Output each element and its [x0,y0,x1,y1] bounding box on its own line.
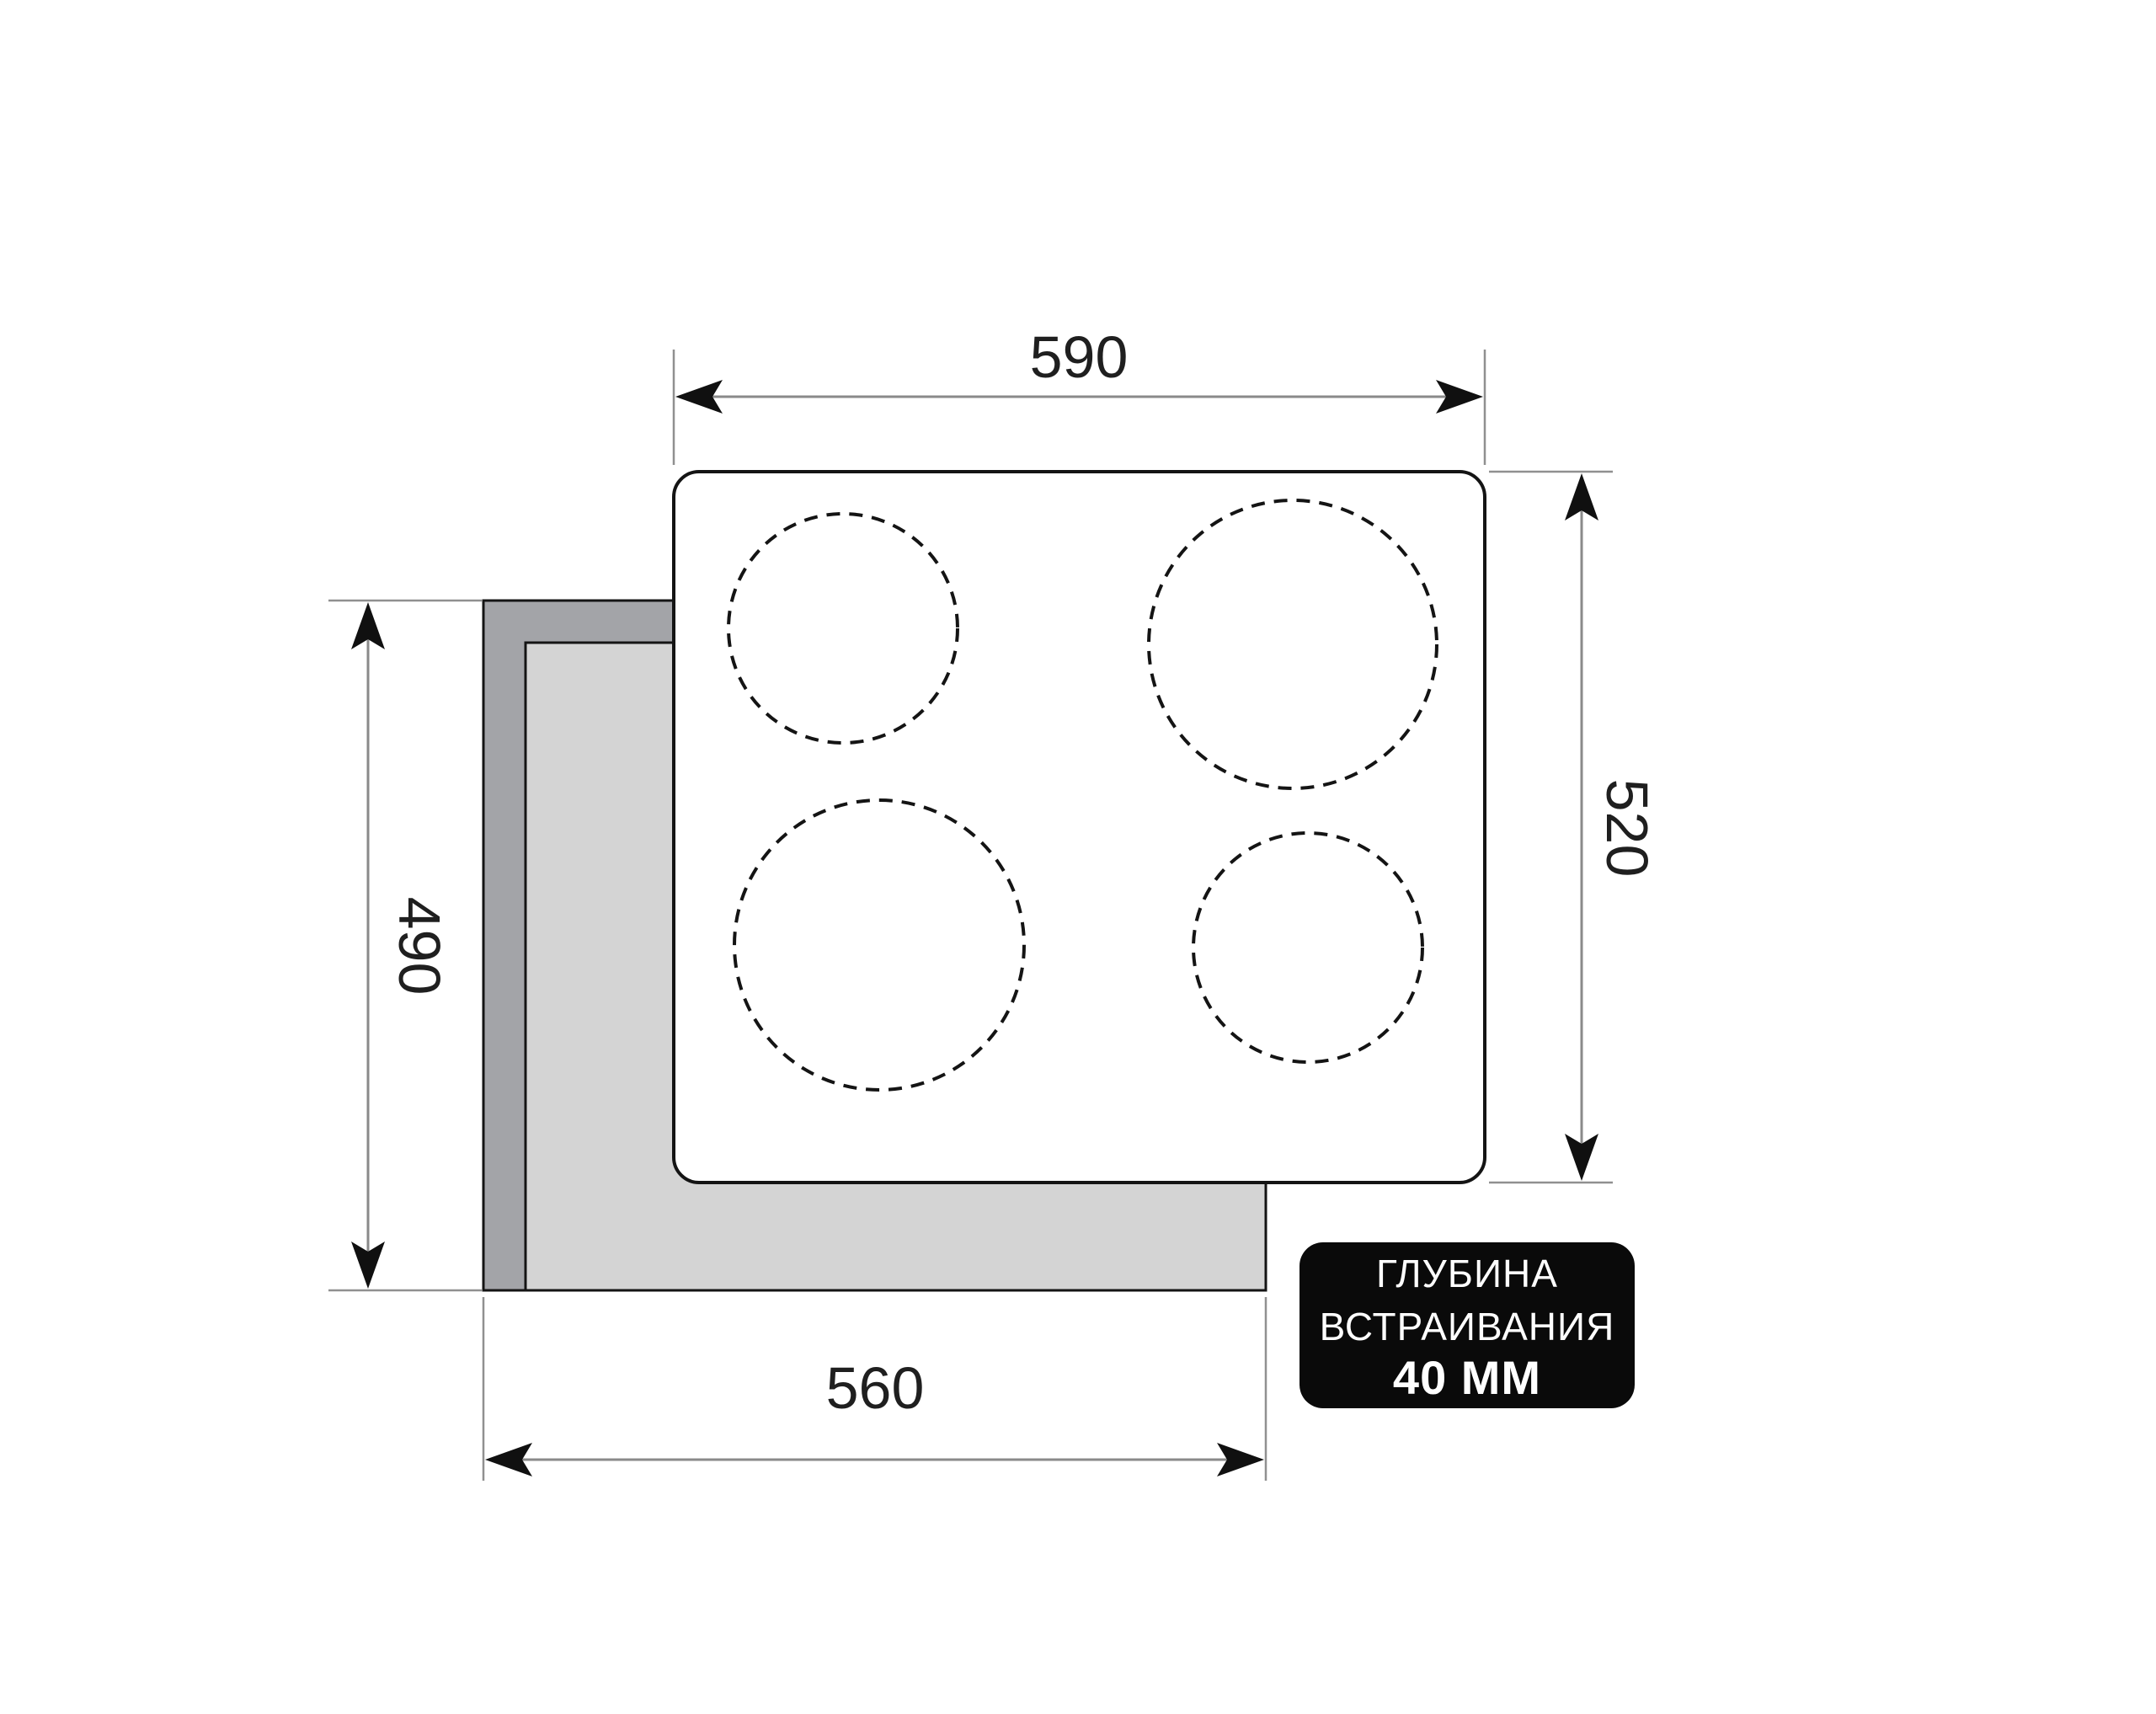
dim-label-cutout-depth: 490 [387,897,452,996]
dimension-diagram-page: 590 520 490 560 ГЛУБИНА ВСТРАИВАНИЯ 40 М… [0,0,2156,1714]
dim-label-hob-width: 590 [1030,324,1129,390]
dimension-hob-width: 590 [674,324,1485,465]
dimension-cutout-depth: 490 [328,601,482,1290]
depth-badge: ГЛУБИНА ВСТРАИВАНИЯ 40 ММ [1299,1242,1635,1408]
dimension-cutout-width: 560 [483,1297,1266,1481]
dimension-hob-depth: 520 [1489,472,1660,1183]
dim-label-cutout-width: 560 [826,1355,925,1421]
dim-label-hob-depth: 520 [1594,779,1660,878]
depth-badge-value: 40 ММ [1393,1351,1541,1404]
depth-badge-line2: ВСТРАИВАНИЯ [1320,1305,1615,1348]
depth-badge-line1: ГЛУБИНА [1376,1252,1558,1295]
hob-dimension-drawing: 590 520 490 560 ГЛУБИНА ВСТРАИВАНИЯ 40 М… [0,0,2156,1714]
